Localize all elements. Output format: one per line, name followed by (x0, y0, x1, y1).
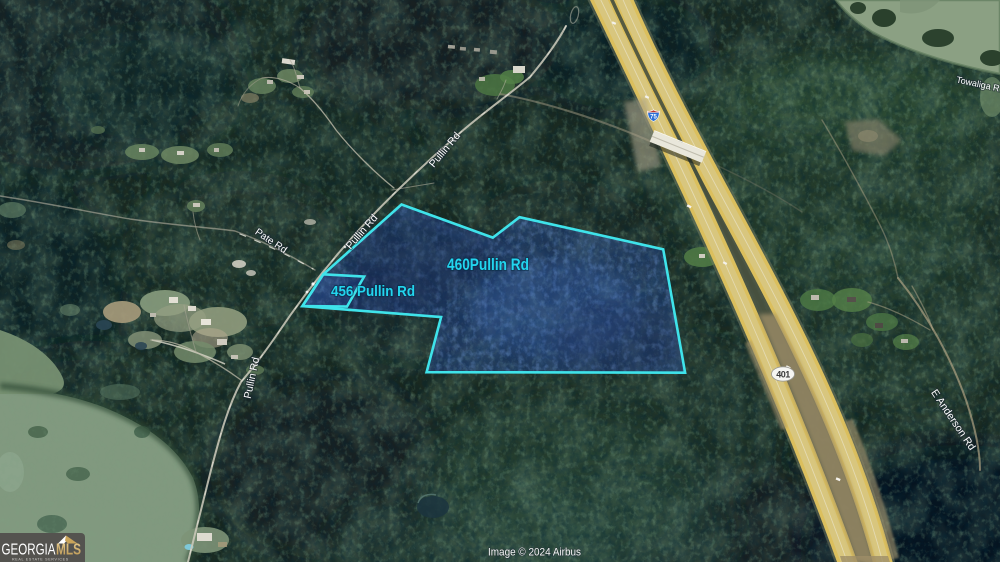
svg-text:460Pullin Rd: 460Pullin Rd (447, 256, 529, 274)
svg-text:456 Pullin Rd: 456 Pullin Rd (331, 284, 415, 300)
svg-text:REAL ESTATE SERVICES: REAL ESTATE SERVICES (12, 558, 69, 562)
svg-text:GEORGIA: GEORGIA (2, 542, 56, 559)
svg-text:MLS: MLS (56, 542, 81, 559)
svg-text:75: 75 (650, 115, 657, 121)
svg-text:Image © 2024 Airbus: Image © 2024 Airbus (488, 547, 581, 559)
svg-text:401: 401 (776, 370, 790, 380)
